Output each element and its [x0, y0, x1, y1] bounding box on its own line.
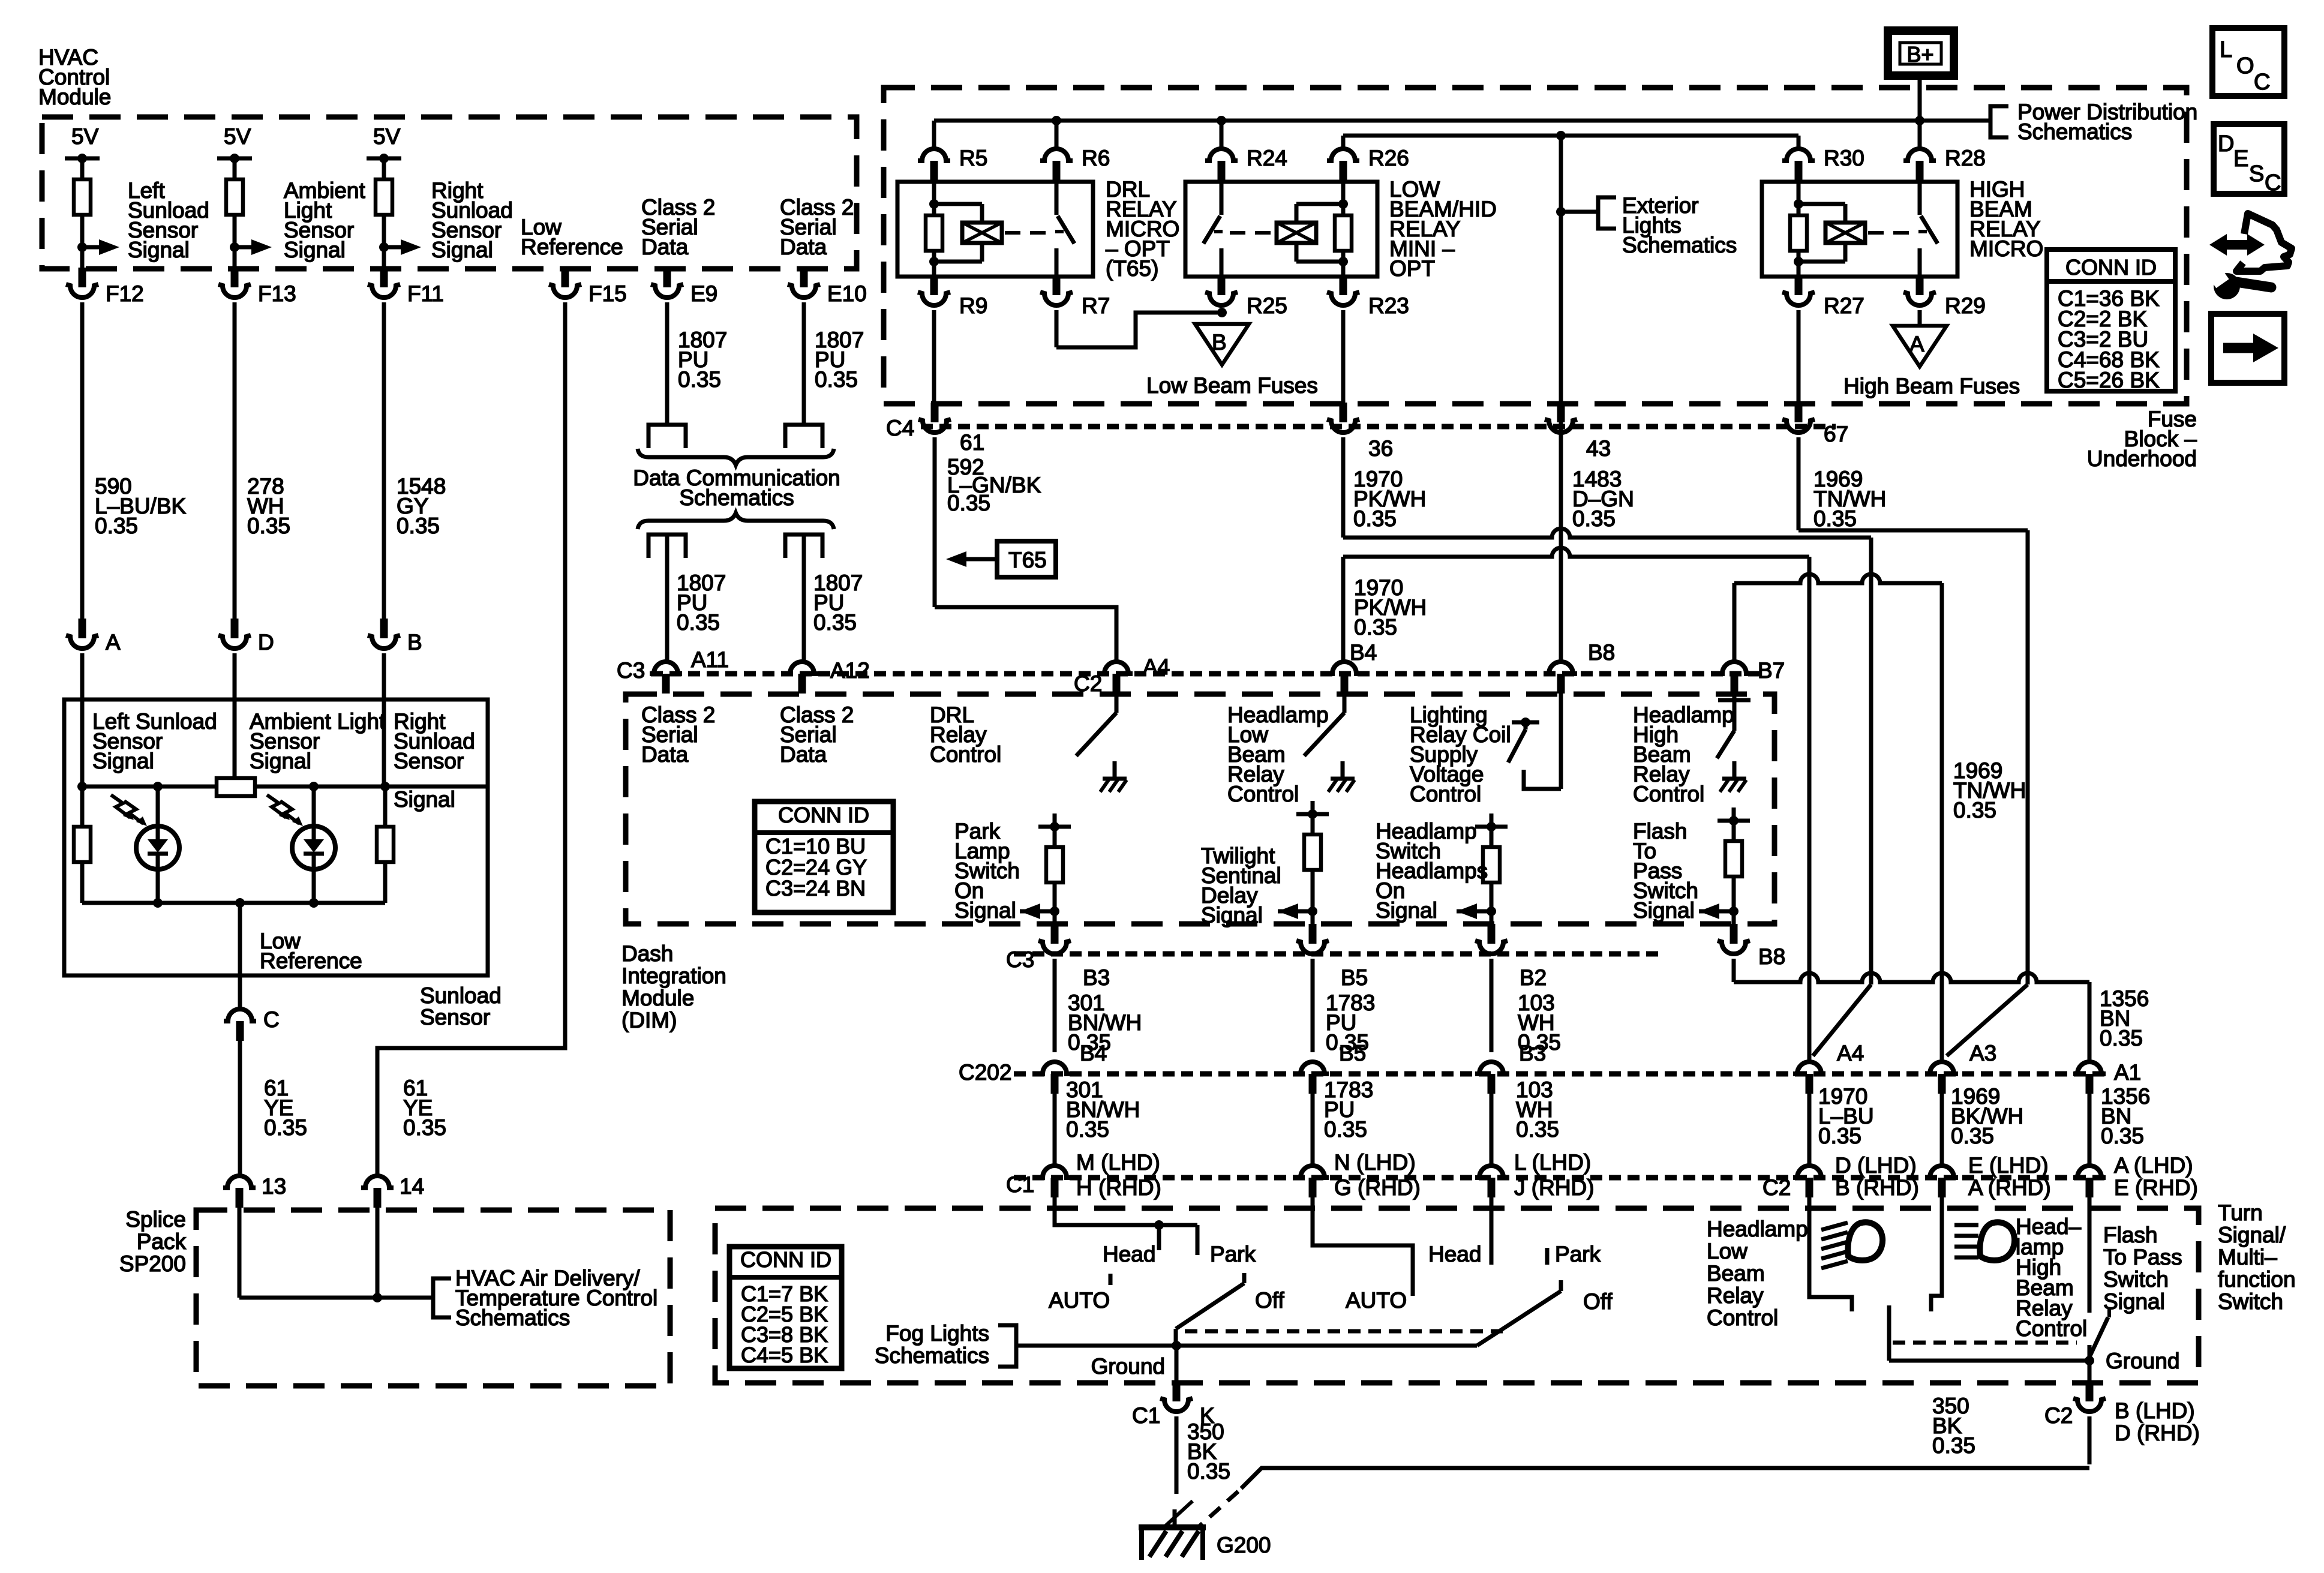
svg-text:0.35: 0.35	[1187, 1459, 1230, 1484]
svg-text:0.35: 0.35	[1516, 1117, 1559, 1142]
svg-text:B4: B4	[1080, 1041, 1107, 1065]
svg-text:0.35: 0.35	[1353, 506, 1397, 531]
svg-text:Sensor: Sensor	[420, 1005, 490, 1029]
svg-text:To Pass: To Pass	[2103, 1245, 2182, 1269]
svg-text:C2: C2	[1074, 671, 1102, 696]
svg-text:A11: A11	[691, 647, 729, 672]
svg-text:Signal/: Signal/	[2218, 1223, 2286, 1247]
svg-text:43: 43	[1586, 436, 1611, 461]
svg-text:C: C	[2265, 170, 2281, 196]
svg-text:R27: R27	[1824, 293, 1864, 318]
svg-text:T65: T65	[1008, 548, 1047, 572]
svg-text:61: 61	[960, 430, 984, 455]
svg-text:A1: A1	[2114, 1060, 2141, 1085]
svg-text:Schematics: Schematics	[1622, 233, 1737, 257]
svg-text:0.35: 0.35	[1572, 506, 1616, 531]
svg-text:A12: A12	[830, 658, 870, 683]
svg-text:0.35: 0.35	[264, 1115, 307, 1140]
svg-text:B3: B3	[1519, 1041, 1546, 1065]
svg-text:36: 36	[1368, 436, 1393, 461]
svg-text:0.35: 0.35	[2100, 1026, 2143, 1050]
svg-text:C3: C3	[1006, 947, 1034, 972]
svg-text:R29: R29	[1945, 293, 1986, 318]
svg-text:Switch: Switch	[2103, 1267, 2169, 1292]
svg-text:C2: C2	[1762, 1175, 1791, 1200]
svg-text:C: C	[2254, 70, 2270, 95]
svg-text:E10: E10	[827, 281, 867, 306]
svg-text:Dash: Dash	[621, 941, 673, 966]
svg-text:Module: Module	[621, 986, 694, 1010]
svg-text:B+: B+	[1906, 42, 1933, 67]
svg-text:D: D	[258, 630, 274, 655]
svg-text:CONN ID: CONN ID	[778, 803, 869, 827]
svg-text:C4: C4	[886, 416, 914, 440]
svg-text:Control: Control	[1633, 782, 1704, 806]
svg-text:Data: Data	[641, 742, 689, 767]
svg-text:B: B	[407, 630, 422, 655]
svg-text:A4: A4	[1837, 1041, 1864, 1065]
svg-text:R28: R28	[1945, 146, 1986, 170]
svg-text:CONN ID: CONN ID	[2065, 255, 2157, 280]
svg-text:R23: R23	[1368, 293, 1409, 318]
svg-text:Schematics: Schematics	[455, 1305, 570, 1330]
svg-text:M (LHD): M (LHD)	[1076, 1150, 1160, 1175]
svg-text:0.35: 0.35	[677, 610, 720, 635]
svg-text:Signal: Signal	[250, 749, 311, 773]
svg-text:L: L	[2220, 37, 2232, 62]
svg-text:Head: Head	[1428, 1242, 1481, 1266]
svg-text:Data: Data	[780, 742, 827, 767]
svg-text:Signal: Signal	[128, 238, 190, 262]
svg-text:Pack: Pack	[137, 1229, 187, 1254]
svg-text:R25: R25	[1247, 293, 1287, 318]
svg-text:S: S	[2249, 161, 2264, 187]
svg-text:Relay: Relay	[1707, 1283, 1764, 1308]
svg-text:Sunload: Sunload	[420, 983, 502, 1008]
svg-text:F13: F13	[258, 281, 296, 306]
svg-text:function: function	[2218, 1267, 2296, 1292]
svg-text:0.35: 0.35	[1324, 1117, 1367, 1142]
svg-text:B: B	[1212, 330, 1227, 355]
svg-text:Schematics: Schematics	[875, 1343, 989, 1368]
svg-text:0.35: 0.35	[1932, 1433, 1975, 1458]
svg-text:E (LHD): E (LHD)	[1968, 1153, 2049, 1178]
svg-text:(DIM): (DIM)	[621, 1008, 677, 1032]
svg-text:Control: Control	[1707, 1305, 1778, 1330]
svg-text:0.35: 0.35	[1813, 506, 1857, 531]
svg-text:B5: B5	[1339, 1041, 1366, 1065]
svg-text:0.35: 0.35	[1951, 1124, 1994, 1148]
svg-text:L (LHD): L (LHD)	[1514, 1150, 1591, 1175]
svg-text:Signal: Signal	[92, 749, 154, 773]
svg-text:Schematics: Schematics	[679, 485, 794, 510]
svg-text:5V: 5V	[71, 124, 99, 149]
svg-text:R26: R26	[1368, 146, 1409, 170]
svg-text:0.35: 0.35	[397, 514, 440, 538]
svg-text:Schematics: Schematics	[2017, 119, 2132, 144]
svg-text:(T65): (T65)	[1106, 256, 1158, 281]
svg-text:B2: B2	[1520, 965, 1547, 990]
svg-text:0.35: 0.35	[1818, 1124, 1861, 1148]
svg-text:F11: F11	[407, 281, 444, 306]
svg-text:E: E	[2233, 146, 2248, 172]
svg-text:Sensor: Sensor	[394, 749, 464, 773]
svg-text:C5=26 BK: C5=26 BK	[2058, 368, 2160, 392]
svg-text:Reference: Reference	[260, 948, 362, 973]
svg-text:67: 67	[1824, 422, 1848, 446]
svg-text:A: A	[106, 630, 121, 655]
svg-text:Control: Control	[1227, 782, 1299, 806]
svg-text:C3=24 BN: C3=24 BN	[765, 876, 866, 900]
svg-text:CONN ID: CONN ID	[740, 1247, 831, 1272]
svg-text:Data: Data	[641, 235, 689, 259]
svg-text:Signal: Signal	[954, 898, 1016, 923]
svg-text:0.35: 0.35	[813, 610, 857, 635]
svg-text:MICRO: MICRO	[1969, 236, 2043, 261]
svg-text:Low Beam Fuses: Low Beam Fuses	[1146, 373, 1318, 398]
svg-text:Signal: Signal	[2103, 1289, 2165, 1314]
svg-text:B (LHD): B (LHD)	[2115, 1398, 2195, 1423]
svg-text:Signal: Signal	[284, 238, 346, 262]
svg-text:B4: B4	[1350, 640, 1377, 665]
svg-text:D (LHD): D (LHD)	[1835, 1153, 1917, 1178]
svg-text:Signal: Signal	[394, 787, 455, 812]
svg-text:R6: R6	[1082, 146, 1110, 170]
svg-text:B8: B8	[1588, 640, 1615, 665]
svg-text:A4: A4	[1143, 655, 1170, 679]
svg-text:Splice: Splice	[125, 1207, 186, 1232]
svg-text:F12: F12	[106, 281, 144, 306]
svg-text:R9: R9	[959, 293, 987, 318]
svg-text:B7: B7	[1758, 658, 1785, 683]
svg-text:OPT: OPT	[1389, 256, 1435, 281]
svg-text:Off: Off	[1583, 1289, 1613, 1314]
svg-text:F15: F15	[588, 281, 627, 306]
svg-text:Ground: Ground	[2106, 1349, 2179, 1373]
svg-text:C: C	[263, 1007, 280, 1032]
svg-text:R24: R24	[1247, 146, 1287, 170]
svg-text:B3: B3	[1083, 965, 1110, 990]
svg-text:Switch: Switch	[2218, 1289, 2283, 1314]
svg-text:G200: G200	[1217, 1533, 1271, 1557]
svg-text:C1: C1	[1132, 1403, 1160, 1428]
svg-text:Reference: Reference	[521, 235, 623, 259]
svg-text:0.35: 0.35	[947, 491, 990, 515]
svg-text:Data: Data	[780, 235, 827, 259]
svg-text:0.35: 0.35	[2101, 1124, 2144, 1148]
svg-text:Signal: Signal	[431, 238, 493, 262]
svg-text:0.35: 0.35	[403, 1115, 446, 1140]
svg-text:Park: Park	[1210, 1242, 1256, 1266]
svg-text:Turn: Turn	[2218, 1200, 2263, 1225]
svg-text:Multi–: Multi–	[2218, 1245, 2277, 1269]
svg-text:0.35: 0.35	[95, 514, 138, 538]
svg-text:13: 13	[262, 1174, 286, 1199]
svg-text:C1: C1	[1006, 1172, 1034, 1197]
svg-text:D: D	[2218, 131, 2234, 157]
svg-text:C4=5 BK: C4=5 BK	[741, 1343, 828, 1367]
svg-text:AUTO: AUTO	[1346, 1288, 1407, 1313]
svg-text:0.35: 0.35	[678, 367, 721, 392]
svg-text:E9: E9	[690, 281, 717, 306]
svg-text:A: A	[1909, 332, 1924, 356]
svg-text:C2: C2	[2044, 1403, 2073, 1428]
svg-text:Underhood: Underhood	[2087, 446, 2197, 471]
svg-text:0.35: 0.35	[247, 514, 290, 538]
svg-text:R30: R30	[1824, 146, 1864, 170]
svg-text:14: 14	[400, 1174, 424, 1199]
svg-text:0.35: 0.35	[1953, 798, 1996, 822]
svg-text:C202: C202	[959, 1060, 1011, 1085]
svg-text:R7: R7	[1082, 293, 1110, 318]
svg-text:Integration: Integration	[621, 963, 726, 988]
svg-text:Headlamp: Headlamp	[1707, 1217, 1808, 1241]
svg-text:R5: R5	[959, 146, 987, 170]
svg-text:B5: B5	[1341, 965, 1368, 990]
svg-text:Control: Control	[930, 742, 1001, 767]
svg-text:Head: Head	[1103, 1242, 1155, 1266]
svg-text:Beam: Beam	[1707, 1261, 1765, 1286]
svg-text:Off: Off	[1255, 1288, 1284, 1313]
svg-text:E (RHD): E (RHD)	[2114, 1175, 2198, 1200]
svg-text:Fog Lights: Fog Lights	[885, 1321, 989, 1346]
svg-text:O: O	[2236, 53, 2254, 79]
svg-text:High Beam Fuses: High Beam Fuses	[1843, 374, 2020, 398]
svg-text:Signal: Signal	[1201, 903, 1263, 927]
svg-text:Ground: Ground	[1091, 1354, 1165, 1379]
svg-text:0.35: 0.35	[1066, 1117, 1109, 1142]
svg-text:Signal: Signal	[1633, 898, 1695, 923]
svg-text:D (RHD): D (RHD)	[2115, 1421, 2200, 1445]
svg-text:C3: C3	[617, 658, 645, 683]
svg-text:Flash: Flash	[2103, 1223, 2157, 1247]
svg-text:Park: Park	[1555, 1242, 1601, 1266]
svg-text:N (LHD): N (LHD)	[1334, 1150, 1416, 1175]
svg-text:Control: Control	[1410, 782, 1481, 806]
svg-text:Low: Low	[1707, 1239, 1747, 1263]
svg-text:A3: A3	[1969, 1041, 1996, 1065]
svg-text:A (LHD): A (LHD)	[2114, 1153, 2193, 1178]
svg-text:Signal: Signal	[1376, 898, 1437, 923]
svg-text:Control: Control	[2016, 1316, 2087, 1341]
svg-text:0.35: 0.35	[815, 367, 858, 392]
svg-text:AUTO: AUTO	[1049, 1288, 1110, 1313]
svg-text:0.35: 0.35	[1354, 615, 1397, 640]
svg-text:SP200: SP200	[119, 1251, 186, 1276]
svg-text:B8: B8	[1758, 944, 1785, 969]
svg-text:Module: Module	[38, 85, 111, 109]
svg-text:5V: 5V	[224, 124, 251, 149]
svg-text:5V: 5V	[373, 124, 401, 149]
